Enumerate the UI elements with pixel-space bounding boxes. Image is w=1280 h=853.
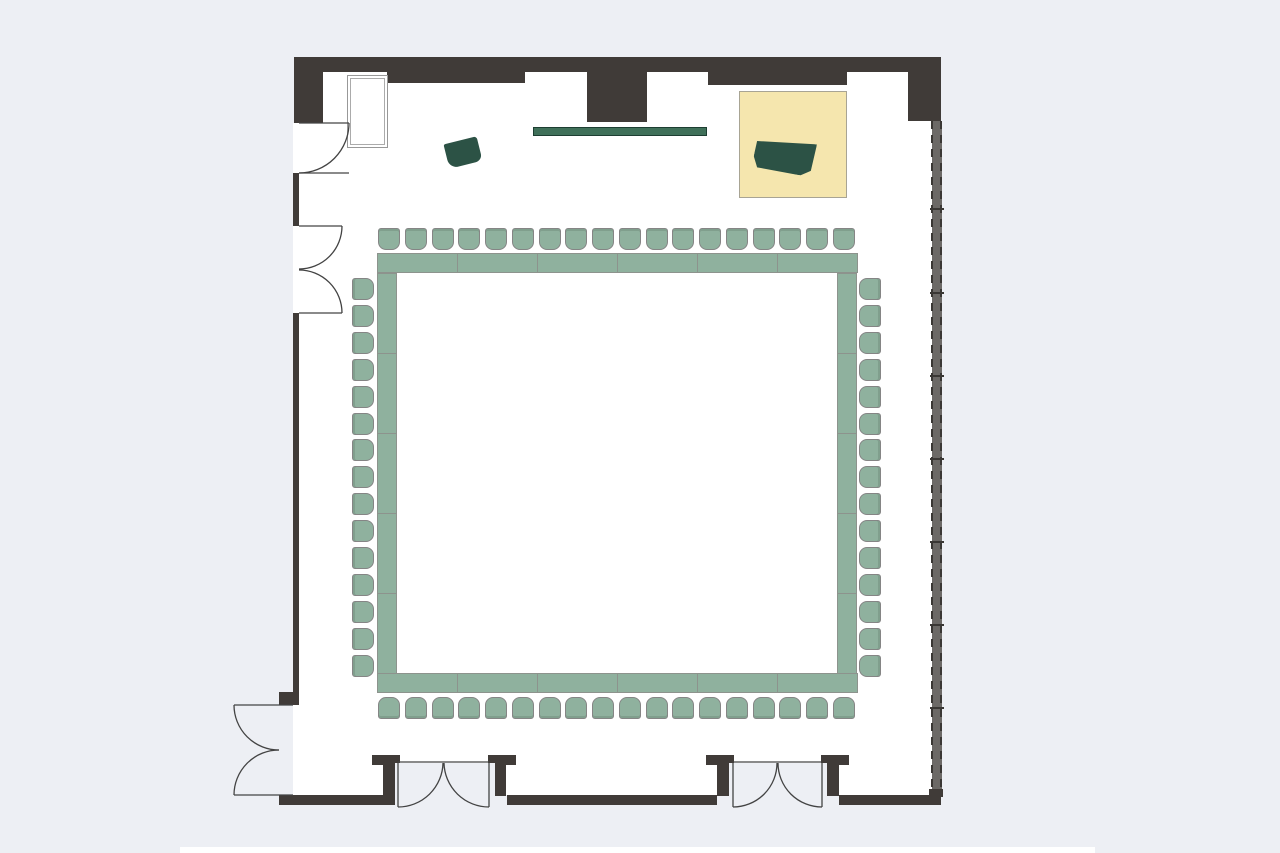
wall-bottom-seg-2 xyxy=(507,795,717,805)
table-segment-bottom[interactable] xyxy=(777,673,858,693)
chair-bottom[interactable] xyxy=(432,697,454,719)
chair-top[interactable] xyxy=(592,228,614,250)
chair-top[interactable] xyxy=(619,228,641,250)
door-vestibule-west xyxy=(395,763,495,805)
table-segment-left[interactable] xyxy=(377,433,397,514)
chair-right[interactable] xyxy=(859,413,881,435)
wall-left-cap xyxy=(279,692,299,705)
chair-left[interactable] xyxy=(352,305,374,327)
table-segment-bottom[interactable] xyxy=(697,673,778,693)
table-segment-right[interactable] xyxy=(837,353,857,434)
floor-plan xyxy=(0,0,1280,853)
chair-top[interactable] xyxy=(806,228,828,250)
chair-top[interactable] xyxy=(779,228,801,250)
wall-left-seg-1 xyxy=(293,173,299,226)
chair-right[interactable] xyxy=(859,332,881,354)
chair-bottom[interactable] xyxy=(565,697,587,719)
chair-right[interactable] xyxy=(859,466,881,488)
chair-bottom[interactable] xyxy=(458,697,480,719)
wall-top-pier-center xyxy=(587,70,647,122)
door-vestibule-east xyxy=(729,763,827,805)
chair-left[interactable] xyxy=(352,601,374,623)
window-mullion-tick xyxy=(930,541,944,543)
table-segment-bottom[interactable] xyxy=(537,673,618,693)
chair-left[interactable] xyxy=(352,628,374,650)
chair-left[interactable] xyxy=(352,278,374,300)
door-jamb-stem xyxy=(494,765,506,796)
chair-left[interactable] xyxy=(352,655,374,677)
chair-top[interactable] xyxy=(458,228,480,250)
table-segment-top[interactable] xyxy=(377,253,458,273)
chair-top[interactable] xyxy=(432,228,454,250)
chair-bottom[interactable] xyxy=(753,697,775,719)
chair-right[interactable] xyxy=(859,439,881,461)
chair-left[interactable] xyxy=(352,574,374,596)
chair-right[interactable] xyxy=(859,574,881,596)
storage-cabinet[interactable] xyxy=(347,75,388,148)
table-segment-bottom[interactable] xyxy=(457,673,538,693)
chair-bottom[interactable] xyxy=(672,697,694,719)
chair-bottom[interactable] xyxy=(833,697,855,719)
chair-left[interactable] xyxy=(352,520,374,542)
chair-top[interactable] xyxy=(753,228,775,250)
chair-top[interactable] xyxy=(512,228,534,250)
table-segment-top[interactable] xyxy=(777,253,858,273)
table-segment-bottom[interactable] xyxy=(377,673,458,693)
chair-right[interactable] xyxy=(859,386,881,408)
chair-left[interactable] xyxy=(352,332,374,354)
chair-left[interactable] xyxy=(352,547,374,569)
wall-left-seg-2 xyxy=(293,313,299,692)
table-segment-right[interactable] xyxy=(837,273,857,354)
chair-left[interactable] xyxy=(352,493,374,515)
window-mullion-tick xyxy=(930,624,944,626)
wall-bottom-seg-3 xyxy=(839,795,941,805)
chair-right[interactable] xyxy=(859,547,881,569)
door-jamb-stem xyxy=(827,765,839,796)
table-segment-top[interactable] xyxy=(617,253,698,273)
chair-bottom[interactable] xyxy=(619,697,641,719)
chair-left[interactable] xyxy=(352,466,374,488)
wall-bottom-seg-1 xyxy=(279,795,395,805)
chair-bottom[interactable] xyxy=(806,697,828,719)
door-gap xyxy=(293,226,299,313)
chair-bottom[interactable] xyxy=(646,697,668,719)
chair-top[interactable] xyxy=(378,228,400,250)
window-mullion-tick xyxy=(930,208,944,210)
chair-right[interactable] xyxy=(859,493,881,515)
chair-right[interactable] xyxy=(859,601,881,623)
table-segment-left[interactable] xyxy=(377,273,397,354)
door-left-lower-arc xyxy=(234,750,279,795)
storage-cabinet-top xyxy=(350,78,385,145)
chair-left[interactable] xyxy=(352,413,374,435)
chair-bottom[interactable] xyxy=(539,697,561,719)
table-segment-right[interactable] xyxy=(837,593,857,674)
wall-top-right-corner xyxy=(908,57,941,121)
table-segment-left[interactable] xyxy=(377,353,397,434)
table-segment-right[interactable] xyxy=(837,433,857,514)
door-gap xyxy=(293,123,299,173)
chair-bottom[interactable] xyxy=(512,697,534,719)
chair-bottom[interactable] xyxy=(699,697,721,719)
chair-top[interactable] xyxy=(405,228,427,250)
chair-top[interactable] xyxy=(699,228,721,250)
window-mullion-tick xyxy=(930,375,944,377)
chair-right[interactable] xyxy=(859,628,881,650)
chair-left[interactable] xyxy=(352,359,374,381)
window-mullion-tick xyxy=(930,292,944,294)
chair-top[interactable] xyxy=(726,228,748,250)
table-segment-left[interactable] xyxy=(377,513,397,594)
chair-bottom[interactable] xyxy=(779,697,801,719)
wall-screen[interactable] xyxy=(533,127,707,136)
table-segment-left[interactable] xyxy=(377,593,397,674)
chair-right[interactable] xyxy=(859,305,881,327)
window-mullion-tick xyxy=(930,707,944,709)
chair-top[interactable] xyxy=(565,228,587,250)
chair-top[interactable] xyxy=(539,228,561,250)
door-jamb-stem xyxy=(383,765,395,796)
door-left-lower-arc xyxy=(234,705,279,750)
canvas-edge xyxy=(180,847,1095,853)
table-segment-top[interactable] xyxy=(537,253,618,273)
chair-left[interactable] xyxy=(352,439,374,461)
table-segment-top[interactable] xyxy=(457,253,538,273)
door-gap xyxy=(293,705,299,795)
wall-top-left-corner xyxy=(294,57,323,123)
chair-top[interactable] xyxy=(646,228,668,250)
window-mullion-tick xyxy=(930,458,944,460)
chair-bottom[interactable] xyxy=(592,697,614,719)
door-jamb-stem xyxy=(717,765,729,796)
chair-bottom[interactable] xyxy=(726,697,748,719)
chair-right[interactable] xyxy=(859,359,881,381)
chair-bottom[interactable] xyxy=(378,697,400,719)
chair-right[interactable] xyxy=(859,655,881,677)
chair-top[interactable] xyxy=(485,228,507,250)
chair-top[interactable] xyxy=(833,228,855,250)
table-segment-top[interactable] xyxy=(697,253,778,273)
chair-bottom[interactable] xyxy=(405,697,427,719)
table-segment-bottom[interactable] xyxy=(617,673,698,693)
wall-top-pier-2 xyxy=(708,70,847,85)
chair-right[interactable] xyxy=(859,520,881,542)
wall-top-pier-1 xyxy=(387,70,525,83)
chair-top[interactable] xyxy=(672,228,694,250)
window-wall-foot xyxy=(929,789,943,797)
chair-right[interactable] xyxy=(859,278,881,300)
chair-left[interactable] xyxy=(352,386,374,408)
table-segment-right[interactable] xyxy=(837,513,857,594)
chair-bottom[interactable] xyxy=(485,697,507,719)
